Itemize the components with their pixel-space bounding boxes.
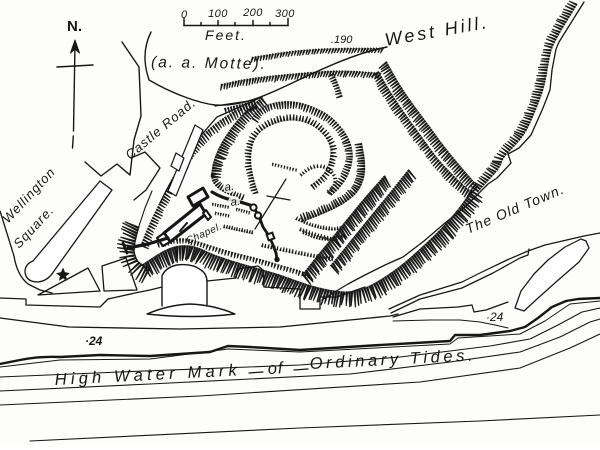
svg-text:·24: ·24	[486, 310, 504, 324]
svg-text:.190: .190	[331, 34, 353, 46]
svg-text:·24: ·24	[85, 334, 103, 348]
svg-text:200: 200	[242, 7, 263, 19]
svg-text:a.: a.	[224, 181, 235, 194]
svg-text:(a. a. Motte).: (a. a. Motte).	[151, 54, 267, 73]
svg-text:Feet.: Feet.	[205, 27, 247, 43]
svg-text:a.: a.	[230, 196, 241, 209]
svg-text:of: of	[267, 359, 285, 378]
svg-text:100: 100	[208, 8, 228, 20]
svg-text:300: 300	[275, 8, 295, 20]
svg-text:N.: N.	[67, 18, 82, 35]
svg-text:0: 0	[181, 9, 188, 21]
